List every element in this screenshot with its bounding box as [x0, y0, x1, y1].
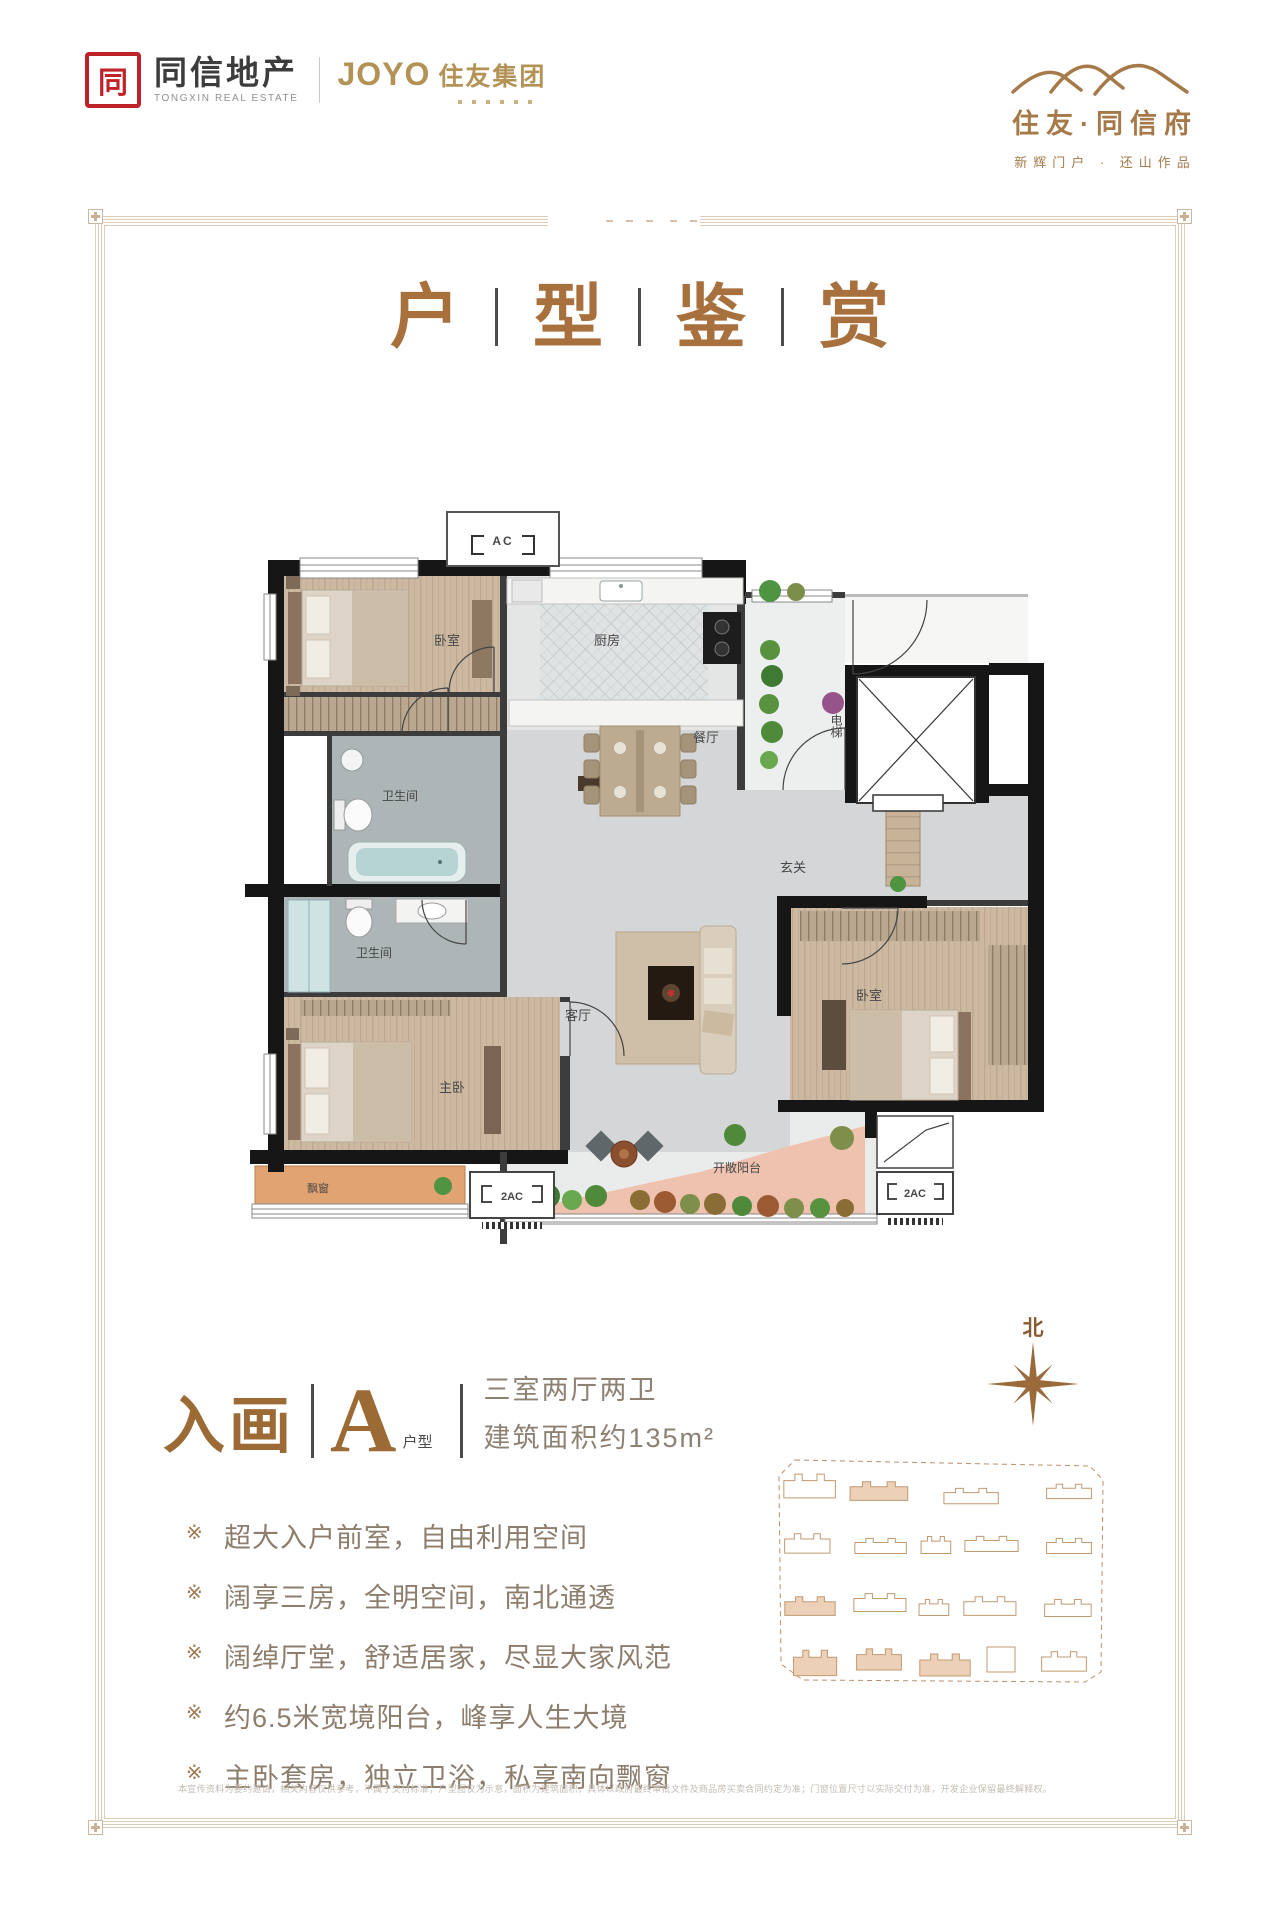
compass: 北	[985, 1312, 1081, 1435]
unit-type-label: 户型	[402, 1431, 432, 1452]
joyo-dots-decoration	[458, 100, 547, 104]
title-separator	[638, 288, 641, 346]
unit-separator	[311, 1384, 314, 1458]
unit-area: 建筑面积约135m²	[483, 1416, 715, 1455]
feature-bullet-icon: ※	[186, 1756, 224, 1785]
brand-left-text: 同信地产 TONGXIN REAL ESTATE	[154, 56, 299, 104]
feature-bullet-icon: ※	[186, 1576, 224, 1605]
balcony-label: 开敞阳台	[713, 1160, 761, 1175]
frame-corner-icon	[1177, 1820, 1192, 1835]
bay-window-label: 飘窗	[307, 1181, 329, 1195]
feature-text: 阔绰厅堂，舒适居家，尽显大家风范	[224, 1636, 672, 1675]
living-label: 客厅	[565, 1008, 591, 1023]
feature-item: ※ 阔绰厅堂，舒适居家，尽显大家风范	[186, 1636, 672, 1675]
dining-label: 餐厅	[693, 730, 719, 745]
ac2-label: 2AC	[904, 1188, 926, 1200]
unit-rooms: 三室两厅两卫	[483, 1368, 715, 1407]
poster-page: 同 同信地产 TONGXIN REAL ESTATE JOYO 住友集团 住友·…	[0, 0, 1279, 1918]
elevator-shaft	[857, 677, 975, 811]
frame-corner-icon	[88, 1820, 103, 1835]
floor-plan: AC 卧室 厨房 餐厅 电梯 卫生间 卫生间 玄关 客厅 主卧 卧室 飘窗 开敞…	[230, 430, 1070, 1260]
compass-star-icon	[985, 1342, 1081, 1430]
bath2-label: 卫生间	[356, 946, 392, 960]
feature-bullet-icon: ※	[186, 1516, 224, 1545]
title-separator	[495, 288, 498, 346]
elevator-label: 电梯	[829, 714, 843, 738]
unit-name: 入画	[163, 1396, 295, 1458]
feature-text: 约6.5米宽境阳台，峰享人生大境	[224, 1696, 629, 1735]
kitchen-label: 厨房	[594, 633, 620, 648]
bedroom-top-label: 卧室	[434, 633, 460, 648]
dining-furniture	[584, 726, 696, 816]
brand-divider	[319, 57, 320, 103]
title-char: 户	[390, 282, 460, 352]
project-tagline: 新辉门户 · 还山作品	[1014, 152, 1196, 171]
feature-item: ※ 超大入户前室，自由利用空间	[186, 1516, 672, 1555]
title-char: 型	[533, 282, 603, 352]
joyo-latin: JOYO	[338, 56, 431, 93]
brand-name-en: TONGXIN REAL ESTATE	[154, 93, 299, 104]
mountain-icon	[1005, 46, 1205, 98]
site-plan	[755, 1440, 1155, 1705]
unit-spec: 三室两厅两卫 建筑面积约135m²	[483, 1368, 715, 1455]
unit-info: 入画 A 户型 三室两厅两卫 建筑面积约135m²	[163, 1368, 715, 1458]
feature-item: ※ 约6.5米宽境阳台，峰享人生大境	[186, 1696, 672, 1735]
feature-text: 超大入户前室，自由利用空间	[224, 1516, 588, 1555]
brand-left: 同 同信地产 TONGXIN REAL ESTATE JOYO 住友集团	[85, 52, 546, 108]
unit-type-letter: A	[330, 1383, 396, 1458]
page-title: 户 型 鉴 赏	[0, 282, 1279, 352]
joyo-brand: JOYO 住友集团	[338, 56, 547, 104]
stair-box	[877, 1116, 953, 1168]
tongxin-logo-icon: 同	[85, 52, 141, 108]
title-separator	[781, 288, 784, 346]
foyer-label: 玄关	[780, 860, 806, 875]
ac1-label: 2AC	[501, 1191, 523, 1203]
unit-separator	[460, 1384, 463, 1458]
master-label: 主卧	[439, 1080, 465, 1095]
brand-name: 同信地产	[154, 56, 299, 89]
bedroom-right-label: 卧室	[856, 988, 882, 1003]
feature-bullet-icon: ※	[186, 1636, 224, 1665]
project-logo: 住友·同信府 新辉门户 · 还山作品	[983, 46, 1227, 171]
feature-list: ※ 超大入户前室，自由利用空间 ※ 阔享三房，全明空间，南北通透 ※ 阔绰厅堂，…	[186, 1516, 672, 1816]
north-label: 北	[985, 1312, 1081, 1342]
project-name: 住友·同信府	[1012, 102, 1198, 141]
title-char: 赏	[819, 282, 889, 352]
ac-top-label: AC	[492, 534, 513, 548]
feature-text: 阔享三房，全明空间，南北通透	[224, 1576, 616, 1615]
site-buildings	[784, 1474, 1092, 1676]
joyo-cn: 住友集团	[438, 57, 546, 93]
title-char: 鉴	[676, 282, 746, 352]
disclaimer-text: 本宣传资料为要约邀请，相关内容仅供参考，不属于交付标准；户型图仅为示意，面积为建…	[178, 1782, 1142, 1795]
feature-item: ※ 阔享三房，全明空间，南北通透	[186, 1576, 672, 1615]
feature-bullet-icon: ※	[186, 1696, 224, 1725]
bath1-label: 卫生间	[382, 789, 418, 803]
frame-corner-icon	[88, 209, 103, 224]
frame-corner-icon	[1177, 209, 1192, 224]
frame-top-ornament	[548, 215, 700, 226]
